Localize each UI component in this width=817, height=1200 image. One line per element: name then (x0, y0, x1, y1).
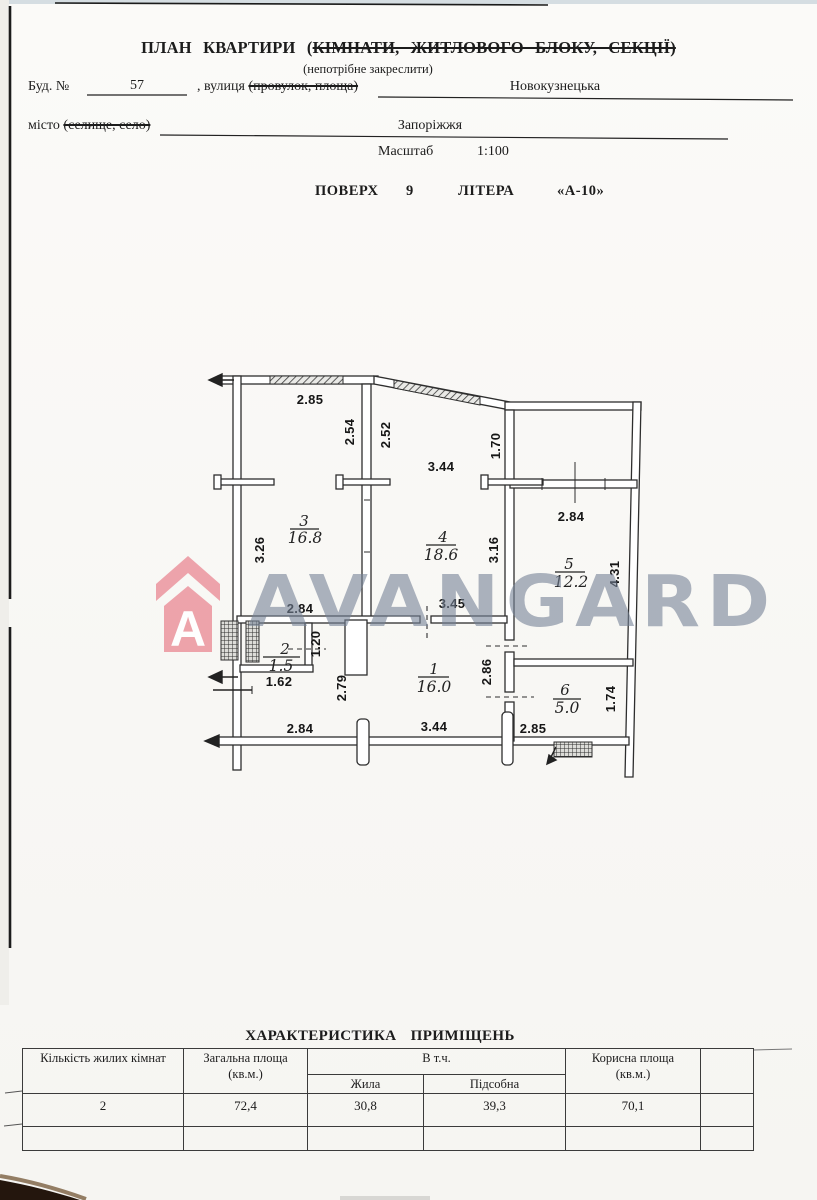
wall-top-right (505, 402, 641, 410)
col-header-living: Жила (308, 1075, 424, 1094)
cell-useful-area: 70,1 (566, 1093, 701, 1126)
cell-empty (23, 1126, 184, 1150)
avangard-watermark-text: AVANGARD (248, 566, 777, 637)
col-header-including: В т.ч. (308, 1049, 566, 1075)
cell-empty (701, 1093, 754, 1126)
room-area: 16.0 (417, 678, 452, 696)
radiator-hatch-bottom (554, 742, 592, 757)
partition-stub-left (216, 479, 274, 485)
room-number: 4 (437, 528, 448, 546)
col-header-empty (701, 1049, 754, 1094)
table-title: ХАРАКТЕРИСТИКА ПРИМІЩЕНЬ (0, 1028, 760, 1045)
window-hatch-diagonal (394, 380, 480, 405)
wall-stub-bottom-right (502, 712, 513, 765)
room-number: 3 (299, 512, 309, 530)
avangard-logo: A (156, 556, 220, 657)
cell-auxiliary-area: 39,3 (424, 1093, 566, 1126)
col-header-useful-line1: Корисна площа (592, 1051, 674, 1065)
dimension-label: 2.79 (334, 675, 349, 702)
cell-empty (424, 1126, 566, 1150)
col-header-useful-line2: (кв.м.) (616, 1067, 650, 1081)
room-number: 1 (429, 660, 439, 678)
cell-empty (308, 1126, 424, 1150)
dimension-label: 3.44 (428, 459, 455, 474)
scanned-document-page: ПЛАН КВАРТИРИ (КІМНАТИ, ЖИТЛОВОГО БЛОКУ,… (0, 0, 817, 1200)
cell-total-area: 72,4 (184, 1093, 308, 1126)
arrow-head-top (209, 374, 222, 386)
dimension-label: 3.44 (421, 719, 448, 734)
room-area: 1.5 (269, 657, 294, 675)
arrow-head-entry (209, 671, 222, 683)
dimension-label: 1.74 (603, 685, 618, 712)
partition-cap-left (214, 475, 221, 489)
col-header-total-area: Загальна площа(кв.м.) (184, 1049, 308, 1094)
wall-stub-bottom-left (357, 719, 369, 765)
shaft-hatch-outer (221, 621, 238, 660)
cell-empty (701, 1126, 754, 1150)
cell-rooms-count: 2 (23, 1093, 184, 1126)
avangard-logo-letter: A (170, 601, 206, 657)
arrow-head-bottom (205, 735, 219, 747)
dimension-label: 2.52 (378, 422, 393, 449)
table-row-empty (23, 1126, 754, 1150)
col-header-rooms: Кількість жилих кімнат (23, 1049, 184, 1094)
wall-room5-room6 (514, 659, 633, 666)
cell-empty (184, 1126, 308, 1150)
characteristics-table-grid: Кількість жилих кімнат Загальна площа(кв… (22, 1048, 754, 1151)
partition-stub-mid (338, 479, 390, 485)
col-header-total-line1: Загальна площа (203, 1051, 287, 1065)
dimension-label: 2.86 (479, 659, 494, 686)
window-hatch-top (270, 376, 343, 384)
col-header-useful-area: Корисна площа(кв.м.) (566, 1049, 701, 1094)
dimension-label: 1.70 (488, 433, 503, 460)
partition-cap-right (481, 475, 488, 489)
dimension-label: 2.85 (520, 721, 547, 736)
partition-stub-right (483, 479, 543, 485)
cell-empty (566, 1126, 701, 1150)
wall-corridor-mid (505, 652, 514, 692)
table-row: 2 72,4 30,8 39,3 70,1 (23, 1093, 754, 1126)
partition-cap-mid (336, 475, 343, 489)
col-header-total-line2: (кв.м.) (228, 1067, 262, 1081)
room-area: 5.0 (555, 699, 580, 717)
characteristics-table: Кількість жилих кімнат Загальна площа(кв… (22, 1048, 754, 1151)
dimension-label: 2.85 (297, 392, 324, 407)
col-header-auxiliary: Підсобна (424, 1075, 566, 1094)
dimension-label: 1.62 (266, 674, 293, 689)
dimension-label: 2.54 (342, 418, 357, 445)
cell-living-area: 30,8 (308, 1093, 424, 1126)
room-area: 16.8 (288, 529, 323, 547)
room-number: 6 (560, 681, 570, 699)
wall-left (233, 376, 241, 770)
dimension-label: 2.84 (287, 721, 314, 736)
dimension-label: 2.84 (558, 509, 585, 524)
